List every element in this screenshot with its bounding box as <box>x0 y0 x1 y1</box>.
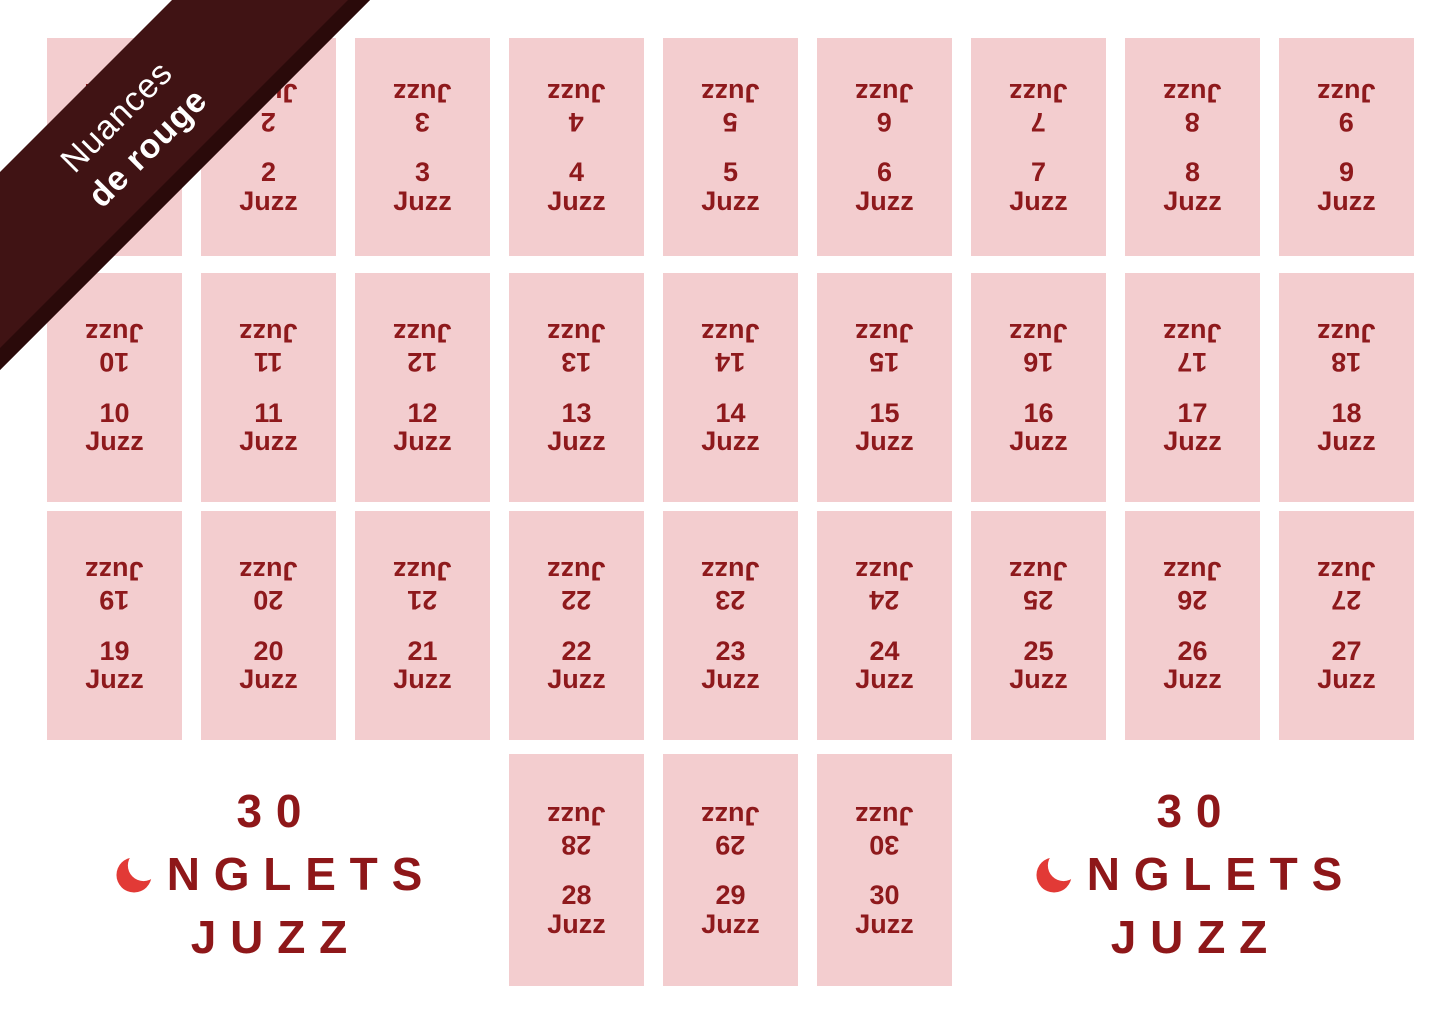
logo-count: 30 <box>237 784 316 838</box>
card-label-normal: 29Juzz <box>701 881 760 938</box>
card-word: Juzz <box>701 427 760 456</box>
swatch-card-16: 16Juzz16Juzz <box>971 273 1106 502</box>
card-number: 11 <box>254 348 283 377</box>
card-word: Juzz <box>239 187 298 216</box>
swatch-card-26: 26Juzz26Juzz <box>1125 511 1260 740</box>
card-number: 2 <box>261 158 276 187</box>
logo-name: NGLETS <box>1036 847 1356 901</box>
card-number: 13 <box>561 399 591 428</box>
card-number: 28 <box>561 830 591 859</box>
card-number: 22 <box>561 637 591 666</box>
card-word: Juzz <box>547 802 606 831</box>
swatch-card-8: 8Juzz8Juzz <box>1125 38 1260 256</box>
card-number: 12 <box>407 348 437 377</box>
card-word: Juzz <box>1163 319 1222 348</box>
card-label-flipped: 22Juzz <box>547 557 606 614</box>
card-label-normal: 16Juzz <box>1009 399 1068 456</box>
card-label-normal: 8Juzz <box>1163 158 1222 215</box>
card-label-normal: 7Juzz <box>1009 158 1068 215</box>
card-number: 25 <box>1023 586 1053 615</box>
card-number: 20 <box>253 637 283 666</box>
card-word: Juzz <box>547 79 606 108</box>
card-number: 21 <box>407 637 437 666</box>
card-number: 13 <box>561 348 591 377</box>
product-sheet: 1Juzz1Juzz2Juzz2Juzz3Juzz3Juzz4Juzz4Juzz… <box>0 0 1445 1022</box>
swatch-card-6: 6Juzz6Juzz <box>817 38 952 256</box>
card-number: 17 <box>1177 399 1207 428</box>
logo-name: NGLETS <box>116 847 436 901</box>
card-label-flipped: 21Juzz <box>393 557 452 614</box>
card-number: 14 <box>715 399 745 428</box>
card-number: 5 <box>723 107 738 136</box>
card-label-normal: 6Juzz <box>855 158 914 215</box>
card-word: Juzz <box>701 910 760 939</box>
card-label-flipped: 8Juzz <box>1163 79 1222 136</box>
card-label-normal: 30Juzz <box>855 881 914 938</box>
card-label-flipped: 6Juzz <box>855 79 914 136</box>
card-number: 19 <box>99 637 129 666</box>
card-number: 16 <box>1023 399 1053 428</box>
card-word: Juzz <box>393 427 452 456</box>
card-number: 21 <box>407 586 437 615</box>
logo-word: JUZZ <box>191 910 361 964</box>
card-label-normal: 11Juzz <box>239 399 298 456</box>
card-number: 20 <box>253 586 283 615</box>
card-label-flipped: 27Juzz <box>1317 557 1376 614</box>
card-word: Juzz <box>701 802 760 831</box>
logo-name-text: NGLETS <box>1087 847 1356 901</box>
card-label-normal: 3Juzz <box>393 158 452 215</box>
card-word: Juzz <box>1163 557 1222 586</box>
card-label-flipped: 25Juzz <box>1009 557 1068 614</box>
card-word: Juzz <box>239 557 298 586</box>
logo-name-text: NGLETS <box>167 847 436 901</box>
card-word: Juzz <box>855 802 914 831</box>
card-label-flipped: 4Juzz <box>547 79 606 136</box>
logo-word: JUZZ <box>1111 910 1281 964</box>
card-number: 18 <box>1331 399 1361 428</box>
swatch-card-4: 4Juzz4Juzz <box>509 38 644 256</box>
card-number: 24 <box>869 586 899 615</box>
card-word: Juzz <box>239 79 298 108</box>
card-number: 4 <box>569 158 584 187</box>
swatch-card-9: 9Juzz9Juzz <box>1279 38 1414 256</box>
card-label-flipped: 18Juzz <box>1317 319 1376 376</box>
card-word: Juzz <box>701 79 760 108</box>
swatch-card-30: 30Juzz30Juzz <box>817 754 952 986</box>
card-word: Juzz <box>701 187 760 216</box>
card-label-normal: 25Juzz <box>1009 637 1068 694</box>
card-word: Juzz <box>855 427 914 456</box>
card-label-normal: 18Juzz <box>1317 399 1376 456</box>
card-label-flipped: 3Juzz <box>393 79 452 136</box>
swatch-card-3: 3Juzz3Juzz <box>355 38 490 256</box>
card-number: 12 <box>407 399 437 428</box>
card-word: Juzz <box>701 319 760 348</box>
card-label-flipped: 13Juzz <box>547 319 606 376</box>
card-label-flipped: 19Juzz <box>85 557 144 614</box>
card-label-normal: 2Juzz <box>239 158 298 215</box>
swatch-card-20: 20Juzz20Juzz <box>201 511 336 740</box>
card-number: 8 <box>1185 158 1200 187</box>
card-word: Juzz <box>1009 187 1068 216</box>
card-number: 27 <box>1331 586 1361 615</box>
card-label-flipped: 23Juzz <box>701 557 760 614</box>
card-word: Juzz <box>701 665 760 694</box>
card-number: 6 <box>877 107 892 136</box>
card-word: Juzz <box>855 910 914 939</box>
card-word: Juzz <box>85 665 144 694</box>
card-word: Juzz <box>239 427 298 456</box>
card-word: Juzz <box>393 319 452 348</box>
card-number: 3 <box>415 107 430 136</box>
card-word: Juzz <box>393 557 452 586</box>
swatch-card-5: 5Juzz5Juzz <box>663 38 798 256</box>
card-word: Juzz <box>85 427 144 456</box>
card-number: 29 <box>715 830 745 859</box>
card-word: Juzz <box>701 557 760 586</box>
card-word: Juzz <box>1163 187 1222 216</box>
card-word: Juzz <box>855 79 914 108</box>
card-word: Juzz <box>547 910 606 939</box>
swatch-card-2: 2Juzz2Juzz <box>201 38 336 256</box>
swatch-card-12: 12Juzz12Juzz <box>355 273 490 502</box>
card-word: Juzz <box>239 665 298 694</box>
card-label-normal: 14Juzz <box>701 399 760 456</box>
card-number: 9 <box>1339 158 1354 187</box>
card-label-normal: 1Juzz <box>85 158 144 215</box>
card-word: Juzz <box>1009 79 1068 108</box>
card-label-normal: 17Juzz <box>1163 399 1222 456</box>
swatch-card-1: 1Juzz1Juzz <box>47 38 182 256</box>
card-number: 24 <box>869 637 899 666</box>
card-number: 1 <box>107 107 122 136</box>
card-word: Juzz <box>393 665 452 694</box>
card-number: 8 <box>1185 107 1200 136</box>
card-number: 3 <box>415 158 430 187</box>
card-label-flipped: 14Juzz <box>701 319 760 376</box>
card-label-flipped: 2Juzz <box>239 79 298 136</box>
card-number: 9 <box>1339 107 1354 136</box>
brand-logo-left: 30 NGLETS JUZZ <box>86 784 452 964</box>
card-label-flipped: 20Juzz <box>239 557 298 614</box>
swatch-card-27: 27Juzz27Juzz <box>1279 511 1414 740</box>
swatch-card-13: 13Juzz13Juzz <box>509 273 644 502</box>
card-word: Juzz <box>1009 557 1068 586</box>
card-label-normal: 26Juzz <box>1163 637 1222 694</box>
card-word: Juzz <box>1163 665 1222 694</box>
card-label-flipped: 30Juzz <box>855 802 914 859</box>
card-number: 29 <box>715 881 745 910</box>
card-number: 7 <box>1031 107 1046 136</box>
swatch-card-11: 11Juzz11Juzz <box>201 273 336 502</box>
card-word: Juzz <box>1009 319 1068 348</box>
card-label-normal: 9Juzz <box>1317 158 1376 215</box>
card-label-flipped: 28Juzz <box>547 802 606 859</box>
card-number: 18 <box>1331 348 1361 377</box>
card-number: 2 <box>261 107 276 136</box>
card-word: Juzz <box>855 665 914 694</box>
swatch-card-10: 10Juzz10Juzz <box>47 273 182 502</box>
card-number: 10 <box>99 348 129 377</box>
card-number: 26 <box>1177 586 1207 615</box>
swatch-card-21: 21Juzz21Juzz <box>355 511 490 740</box>
card-number: 16 <box>1023 348 1053 377</box>
card-label-flipped: 12Juzz <box>393 319 452 376</box>
crescent-moon-icon <box>1036 855 1074 893</box>
card-word: Juzz <box>855 319 914 348</box>
card-label-normal: 12Juzz <box>393 399 452 456</box>
swatch-card-14: 14Juzz14Juzz <box>663 273 798 502</box>
card-number: 15 <box>869 348 899 377</box>
card-word: Juzz <box>85 319 144 348</box>
swatch-card-29: 29Juzz29Juzz <box>663 754 798 986</box>
card-label-flipped: 26Juzz <box>1163 557 1222 614</box>
card-word: Juzz <box>393 187 452 216</box>
brand-logo-right: 30 NGLETS JUZZ <box>1006 784 1372 964</box>
swatch-card-15: 15Juzz15Juzz <box>817 273 952 502</box>
swatch-card-18: 18Juzz18Juzz <box>1279 273 1414 502</box>
card-label-flipped: 1Juzz <box>85 79 144 136</box>
swatch-card-22: 22Juzz22Juzz <box>509 511 644 740</box>
card-label-flipped: 10Juzz <box>85 319 144 376</box>
card-word: Juzz <box>1317 187 1376 216</box>
card-number: 6 <box>877 158 892 187</box>
card-label-normal: 28Juzz <box>547 881 606 938</box>
card-number: 26 <box>1177 637 1207 666</box>
card-label-flipped: 16Juzz <box>1009 319 1068 376</box>
card-word: Juzz <box>1317 665 1376 694</box>
card-label-flipped: 29Juzz <box>701 802 760 859</box>
card-word: Juzz <box>547 665 606 694</box>
card-number: 11 <box>254 399 283 428</box>
logo-count: 30 <box>1157 784 1236 838</box>
card-label-flipped: 9Juzz <box>1317 79 1376 136</box>
card-word: Juzz <box>85 557 144 586</box>
card-number: 30 <box>869 830 899 859</box>
card-number: 15 <box>869 399 899 428</box>
card-number: 4 <box>569 107 584 136</box>
card-label-normal: 20Juzz <box>239 637 298 694</box>
swatch-card-19: 19Juzz19Juzz <box>47 511 182 740</box>
card-word: Juzz <box>855 557 914 586</box>
card-word: Juzz <box>1009 427 1068 456</box>
card-label-normal: 23Juzz <box>701 637 760 694</box>
card-number: 25 <box>1023 637 1053 666</box>
card-number: 22 <box>561 586 591 615</box>
card-number: 27 <box>1331 637 1361 666</box>
card-label-flipped: 24Juzz <box>855 557 914 614</box>
swatch-card-25: 25Juzz25Juzz <box>971 511 1106 740</box>
card-number: 14 <box>715 348 745 377</box>
card-label-normal: 4Juzz <box>547 158 606 215</box>
card-number: 23 <box>715 637 745 666</box>
card-number: 1 <box>107 158 122 187</box>
swatch-card-28: 28Juzz28Juzz <box>509 754 644 986</box>
card-word: Juzz <box>1317 557 1376 586</box>
card-word: Juzz <box>547 319 606 348</box>
card-label-normal: 5Juzz <box>701 158 760 215</box>
card-number: 23 <box>715 586 745 615</box>
card-label-normal: 15Juzz <box>855 399 914 456</box>
card-label-flipped: 11Juzz <box>239 319 298 376</box>
card-word: Juzz <box>85 187 144 216</box>
card-word: Juzz <box>1009 665 1068 694</box>
card-label-normal: 24Juzz <box>855 637 914 694</box>
swatch-card-23: 23Juzz23Juzz <box>663 511 798 740</box>
card-number: 7 <box>1031 158 1046 187</box>
card-word: Juzz <box>547 427 606 456</box>
crescent-moon-icon <box>116 855 154 893</box>
card-label-flipped: 7Juzz <box>1009 79 1068 136</box>
card-label-normal: 22Juzz <box>547 637 606 694</box>
card-label-normal: 13Juzz <box>547 399 606 456</box>
card-number: 30 <box>869 881 899 910</box>
card-word: Juzz <box>855 187 914 216</box>
card-word: Juzz <box>547 187 606 216</box>
card-word: Juzz <box>1163 427 1222 456</box>
card-number: 17 <box>1177 348 1207 377</box>
swatch-card-17: 17Juzz17Juzz <box>1125 273 1260 502</box>
swatch-card-7: 7Juzz7Juzz <box>971 38 1106 256</box>
card-word: Juzz <box>547 557 606 586</box>
card-number: 5 <box>723 158 738 187</box>
card-number: 19 <box>99 586 129 615</box>
card-word: Juzz <box>1163 79 1222 108</box>
card-word: Juzz <box>393 79 452 108</box>
card-word: Juzz <box>239 319 298 348</box>
card-label-normal: 27Juzz <box>1317 637 1376 694</box>
card-label-flipped: 15Juzz <box>855 319 914 376</box>
card-number: 10 <box>99 399 129 428</box>
card-number: 28 <box>561 881 591 910</box>
swatch-card-24: 24Juzz24Juzz <box>817 511 952 740</box>
card-word: Juzz <box>1317 427 1376 456</box>
card-word: Juzz <box>85 79 144 108</box>
card-label-normal: 19Juzz <box>85 637 144 694</box>
card-label-normal: 10Juzz <box>85 399 144 456</box>
card-word: Juzz <box>1317 79 1376 108</box>
card-label-flipped: 5Juzz <box>701 79 760 136</box>
card-word: Juzz <box>1317 319 1376 348</box>
card-label-flipped: 17Juzz <box>1163 319 1222 376</box>
card-label-normal: 21Juzz <box>393 637 452 694</box>
